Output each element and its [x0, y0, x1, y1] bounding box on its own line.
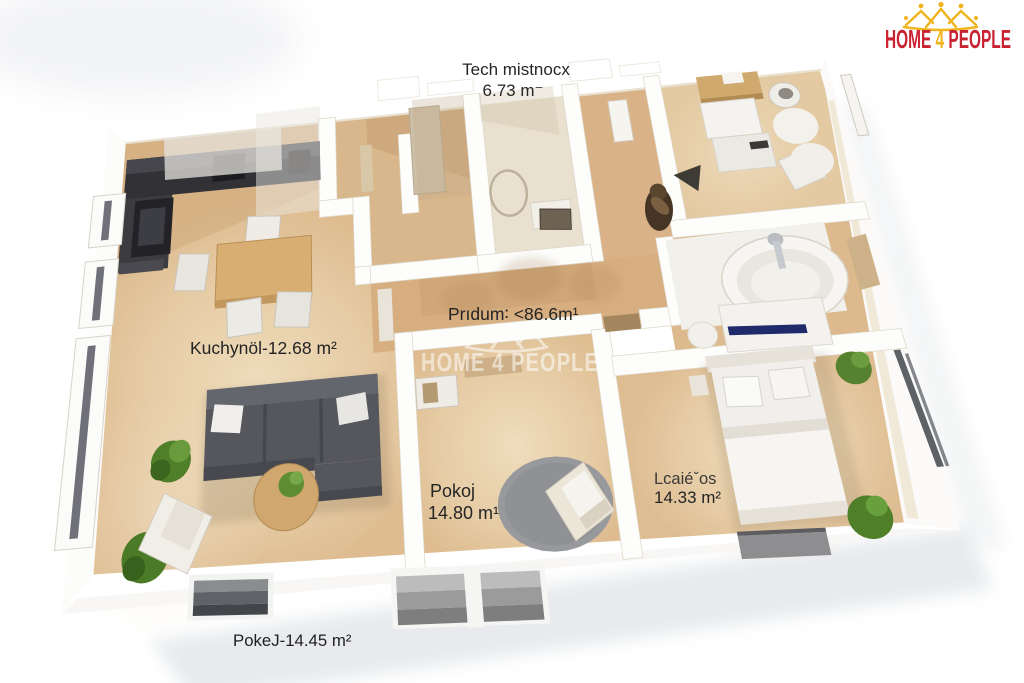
svg-text:Prıdum∶ ˂86.6m¹: Prıdum∶ ˂86.6m¹	[448, 304, 579, 324]
svg-text:14.80 m¹: 14.80 m¹	[428, 503, 499, 523]
svg-text:Kuchynöl-12.68 m²: Kuchynöl-12.68 m²	[190, 338, 337, 358]
svg-text:HOME 4 PEOPLE: HOME 4 PEOPLE	[885, 24, 1011, 54]
svg-text:Tech mistnocx: Tech mistnocx	[462, 60, 570, 79]
svg-text:Lcaiéˇos: Lcaiéˇos	[654, 470, 716, 488]
svg-text:Pokoj: Pokoj	[430, 481, 475, 501]
svg-text:PokeJ-14.45 m²: PokeJ-14.45 m²	[233, 631, 352, 650]
svg-text:14.33 m²: 14.33 m²	[654, 488, 721, 507]
svg-text:HOME 4 PEOPLE: HOME 4 PEOPLE	[421, 347, 599, 377]
svg-text:6.73 m⁻: 6.73 m⁻	[483, 81, 544, 100]
